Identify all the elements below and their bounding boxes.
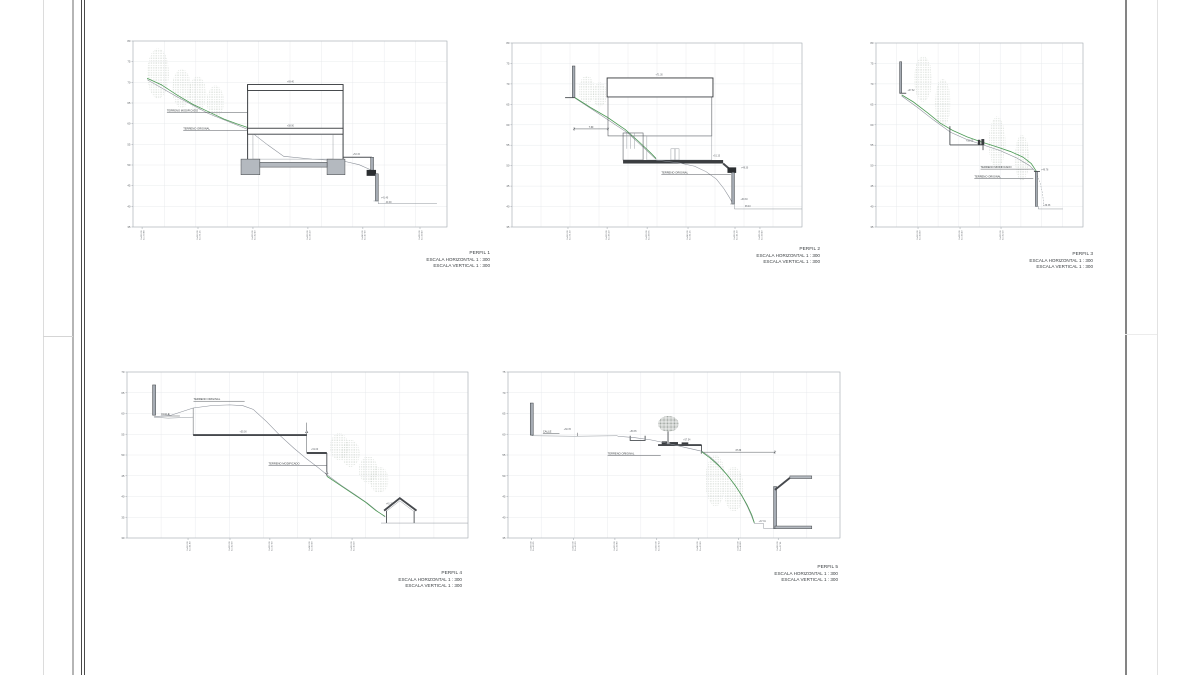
svg-text:Co=44.20: Co=44.20 <box>354 541 356 551</box>
svg-text:+49.78: +49.78 <box>1041 169 1049 171</box>
svg-text:50: 50 <box>502 474 506 478</box>
svg-text:47.30: 47.30 <box>735 450 741 452</box>
svg-text:65: 65 <box>506 102 510 106</box>
svg-text:40: 40 <box>121 495 125 499</box>
profile-svg-5: 7570656055504540350+000.00Co=60.350+010.… <box>492 367 848 572</box>
svg-text:60: 60 <box>870 123 874 127</box>
svg-text:75: 75 <box>870 61 874 65</box>
svg-text:40.90: 40.90 <box>386 202 392 204</box>
svg-text:80: 80 <box>506 41 510 45</box>
profile-scale-vertical: ESCALA VERTICAL 1 : 300 <box>756 259 820 265</box>
svg-text:65: 65 <box>502 412 506 416</box>
profile-svg-1: 807570656055504540350+000.00Co=79.880+01… <box>117 36 455 261</box>
svg-text:70: 70 <box>127 80 131 84</box>
sheet-border-left-outer <box>43 0 44 675</box>
svg-text:40: 40 <box>506 205 510 209</box>
svg-text:Co=79.88: Co=79.88 <box>144 230 146 240</box>
svg-text:Co=62.40: Co=62.40 <box>255 230 257 240</box>
svg-text:+49.30: +49.30 <box>741 167 749 169</box>
profile-chart-perfil-1: 807570656055504540350+000.00Co=79.880+01… <box>117 36 455 261</box>
svg-text:Co=44.90: Co=44.90 <box>740 541 742 551</box>
sheet-border-left-inner-2 <box>84 0 85 675</box>
profile-caption-4: PERFIL 4 ESCALA HORIZONTAL 1 : 300 ESCAL… <box>398 571 462 589</box>
svg-text:35: 35 <box>121 515 125 519</box>
svg-text:Co=59.80: Co=59.80 <box>617 541 619 551</box>
profile-svg-3: 807570656055504540350+010.00Co=64.500+02… <box>860 38 1091 261</box>
sheet-border-left-mid <box>72 0 74 675</box>
svg-text:Co=51.15: Co=51.15 <box>690 230 692 240</box>
svg-text:75: 75 <box>127 60 131 64</box>
svg-text:60: 60 <box>506 123 510 127</box>
svg-text:Co=56.40: Co=56.40 <box>962 230 964 240</box>
site-plan <box>875 338 1122 562</box>
svg-text:TERRENO ORIGINAL: TERRENO ORIGINAL <box>661 171 688 175</box>
svg-text:50: 50 <box>506 164 510 168</box>
svg-text:40: 40 <box>127 204 131 208</box>
svg-text:Co=64.50: Co=64.50 <box>920 230 922 240</box>
svg-text:CALLE: CALLE <box>543 429 552 433</box>
profile-scale-vertical: ESCALA VERTICAL 1 : 300 <box>426 263 490 269</box>
svg-text:+41.20: +41.20 <box>386 503 394 505</box>
profile-scale-vertical: ESCALA VERTICAL 1 : 300 <box>774 577 838 583</box>
svg-text:45: 45 <box>506 184 510 188</box>
svg-text:65: 65 <box>127 101 131 105</box>
profile-chart-perfil-5: 7570656055504540350+000.00Co=60.350+010.… <box>492 367 848 572</box>
svg-text:Co=39.40: Co=39.40 <box>422 230 424 240</box>
svg-text:Co=62.00: Co=62.00 <box>232 541 234 551</box>
svg-text:50: 50 <box>121 453 125 457</box>
svg-text:TERRENO ORIGINAL: TERRENO ORIGINAL <box>608 452 635 456</box>
profile-svg-4: 7065605550454035300+010.00Co=61.800+020.… <box>111 367 476 572</box>
svg-text:38.40: 38.40 <box>745 206 751 208</box>
svg-text:75: 75 <box>502 370 506 374</box>
profile-caption-1: PERFIL 1 ESCALA HORIZONTAL 1 : 300 ESCAL… <box>426 251 490 269</box>
svg-text:+55.00: +55.00 <box>240 431 248 433</box>
svg-text:35: 35 <box>870 225 874 229</box>
svg-text:Co=37.91: Co=37.91 <box>780 541 782 551</box>
profile-scale-vertical: ESCALA VERTICAL 1 : 300 <box>1029 264 1093 270</box>
svg-text:70: 70 <box>502 391 506 395</box>
svg-text:Co=55.10: Co=55.10 <box>309 230 311 240</box>
blue-rect <box>904 630 1125 675</box>
svg-text:+60.35: +60.35 <box>564 429 572 431</box>
svg-text:+71.30: +71.30 <box>656 74 664 76</box>
svg-text:40: 40 <box>870 205 874 209</box>
svg-text:+39.38: +39.38 <box>1043 205 1051 207</box>
svg-text:Co=47.90: Co=47.90 <box>364 230 366 240</box>
svg-text:+55.60: +55.60 <box>966 140 974 142</box>
profile-caption-5: PERFIL 5 ESCALA HORIZONTAL 1 : 300 ESCAL… <box>774 565 838 583</box>
svg-text:70: 70 <box>121 370 125 374</box>
svg-text:Co=60.20: Co=60.20 <box>575 541 577 551</box>
svg-text:TERRENO MODIFICADO: TERRENO MODIFICADO <box>269 462 300 466</box>
svg-text:TERRENO ORIGINAL: TERRENO ORIGINAL <box>183 127 210 131</box>
svg-text:45: 45 <box>121 474 125 478</box>
svg-text:70: 70 <box>506 82 510 86</box>
svg-text:60: 60 <box>502 432 506 436</box>
svg-text:+51.00: +51.00 <box>311 449 319 451</box>
profile-svg-2: 807570656055504540350+010.00Co=71.300+02… <box>496 38 810 261</box>
sheet-border-right-inner <box>1125 0 1127 675</box>
svg-text:Co=41.30: Co=41.30 <box>737 230 739 240</box>
svg-text:65: 65 <box>121 391 125 395</box>
svg-text:Co=39.40: Co=39.40 <box>762 230 764 240</box>
svg-text:TERRENO MODIFICADO: TERRENO MODIFICADO <box>167 109 198 113</box>
svg-text:+58.90: +58.90 <box>287 126 295 128</box>
svg-text:45: 45 <box>502 495 506 499</box>
svg-text:TERRENO ORIGINAL: TERRENO ORIGINAL <box>974 174 1001 178</box>
svg-text:55: 55 <box>870 143 874 147</box>
fold-mark-right <box>1125 334 1157 335</box>
svg-text:Co=50.90: Co=50.90 <box>312 541 314 551</box>
profile-chart-perfil-4: 7065605550454035300+010.00Co=61.800+020.… <box>111 367 476 572</box>
site-plan-svg <box>875 338 1122 562</box>
svg-text:50: 50 <box>127 163 131 167</box>
svg-text:80: 80 <box>870 41 874 45</box>
fold-mark-left <box>43 336 73 337</box>
svg-text:70: 70 <box>870 82 874 86</box>
sheet-border-right-outer <box>1157 0 1158 675</box>
svg-text:35: 35 <box>506 225 510 229</box>
svg-text:45: 45 <box>870 184 874 188</box>
svg-text:60: 60 <box>121 412 125 416</box>
svg-text:30: 30 <box>121 536 125 540</box>
svg-text:65: 65 <box>870 102 874 106</box>
svg-text:Co=57.54: Co=57.54 <box>658 541 660 551</box>
svg-text:+41.40: +41.40 <box>381 197 389 199</box>
svg-text:Co=58.75: Co=58.75 <box>649 230 651 240</box>
svg-text:Co=57.60: Co=57.60 <box>271 541 273 551</box>
svg-text:Co=60.35: Co=60.35 <box>533 541 535 551</box>
svg-text:TERRENO ORIGINAL: TERRENO ORIGINAL <box>193 397 220 401</box>
svg-text:Co=71.30: Co=71.30 <box>570 230 572 240</box>
svg-text:60: 60 <box>127 122 131 126</box>
svg-text:35: 35 <box>502 536 506 540</box>
profile-chart-perfil-3: 807570656055504540350+010.00Co=64.500+02… <box>860 38 1091 261</box>
svg-text:40: 40 <box>502 515 506 519</box>
svg-text:TERRENO MODIFICADO: TERRENO MODIFICADO <box>981 165 1012 169</box>
profile-caption-3: PERFIL 3 ESCALA HORIZONTAL 1 : 300 ESCAL… <box>1029 252 1093 270</box>
svg-text:80: 80 <box>127 39 131 43</box>
svg-text:Co=53.60: Co=53.60 <box>700 541 702 551</box>
svg-text:+59.35: +59.35 <box>630 431 638 433</box>
svg-text:45: 45 <box>127 184 131 188</box>
svg-text:50: 50 <box>870 164 874 168</box>
svg-text:Co=71.15: Co=71.15 <box>200 230 202 240</box>
profile-chart-perfil-2: 807570656055504540350+010.00Co=71.300+02… <box>496 38 810 261</box>
svg-text:+57.54: +57.54 <box>683 440 691 442</box>
svg-text:+37.91: +37.91 <box>759 521 767 523</box>
profile-caption-2: PERFIL 2 ESCALA HORIZONTAL 1 : 300 ESCAL… <box>756 247 820 265</box>
svg-text:+69.40: +69.40 <box>287 81 295 83</box>
svg-text:+51.15: +51.15 <box>713 156 721 158</box>
svg-text:35: 35 <box>127 225 131 229</box>
svg-text:Co=65.20: Co=65.20 <box>609 230 611 240</box>
svg-text:55: 55 <box>121 432 125 436</box>
svg-text:+53.15: +53.15 <box>353 154 361 156</box>
profile-scale-vertical: ESCALA VERTICAL 1 : 300 <box>398 583 462 589</box>
svg-text:55: 55 <box>502 453 506 457</box>
svg-text:55: 55 <box>506 143 510 147</box>
svg-text:+39.30: +39.30 <box>741 199 749 201</box>
svg-text:+67.62: +67.62 <box>907 90 915 92</box>
svg-text:Co=61.80: Co=61.80 <box>190 541 192 551</box>
svg-text:55: 55 <box>127 142 131 146</box>
sheet-border-left-inner-1 <box>81 0 82 675</box>
svg-text:Co=52.20: Co=52.20 <box>1003 230 1005 240</box>
svg-text:75: 75 <box>506 61 510 65</box>
svg-text:7.60: 7.60 <box>589 127 594 129</box>
